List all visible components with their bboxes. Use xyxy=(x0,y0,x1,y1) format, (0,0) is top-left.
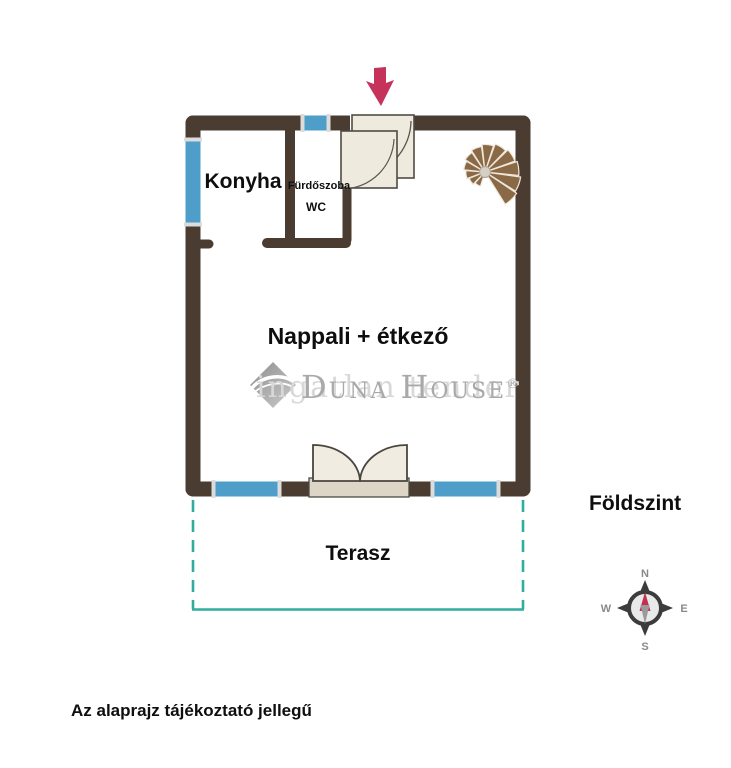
window-top xyxy=(301,114,331,132)
window-bottom-left xyxy=(212,480,282,498)
window-bottom-right xyxy=(431,480,501,498)
window-left xyxy=(184,138,202,227)
floor-level-label: Földszint xyxy=(589,493,681,514)
disclaimer-text: Az alaprajz tájékoztató jellegű xyxy=(71,702,312,719)
compass-rose: N S W E xyxy=(601,568,688,653)
room-label-kitchen: Konyha xyxy=(204,171,281,192)
room-label-wc: WC xyxy=(306,201,326,213)
compass-label-south: S xyxy=(641,641,648,653)
staircase-hub xyxy=(480,167,491,178)
spiral-staircase xyxy=(464,144,521,204)
entrance-door xyxy=(341,115,414,189)
terrace-double-door xyxy=(309,445,409,497)
watermark-brand: Duna House® xyxy=(301,371,521,403)
compass-label-west: W xyxy=(601,603,612,615)
room-label-living-dining: Nappali + étkező xyxy=(268,325,449,348)
compass-label-north: N xyxy=(641,568,649,580)
room-label-terrace: Terasz xyxy=(326,543,391,564)
door-leaf-left xyxy=(313,445,360,481)
door-leaf-right xyxy=(360,445,407,481)
room-label-bathroom: Fürdőszoba xyxy=(288,181,350,192)
watermark-brand-name: Duna House xyxy=(301,368,506,406)
entry-arrow-icon xyxy=(366,67,394,106)
floor-plan-page: N S W E ingatlan tender Duna House® Kony… xyxy=(0,0,731,768)
registered-trademark-symbol: ® xyxy=(506,377,521,392)
compass-label-east: E xyxy=(680,603,687,615)
